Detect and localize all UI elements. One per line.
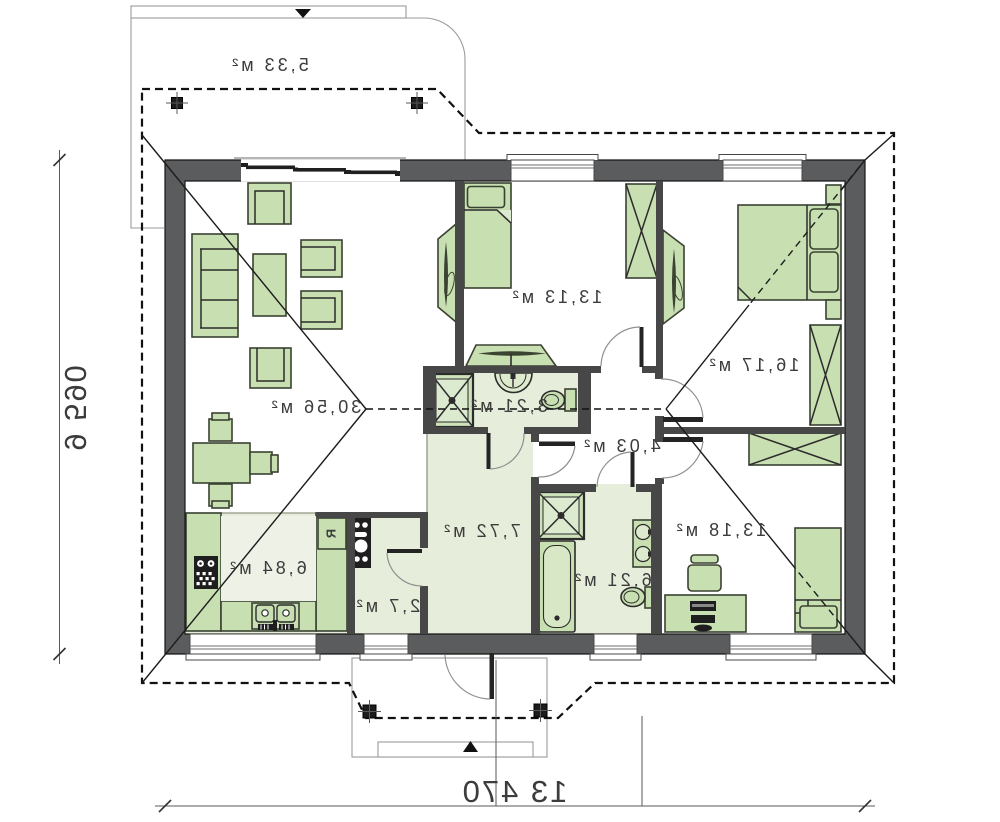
svg-text:13,18 м²: 13,18 м² [674, 520, 766, 540]
svg-text:9 590: 9 590 [58, 363, 93, 451]
svg-text:5,33 м²: 5,33 м² [229, 55, 308, 75]
svg-text:13 470: 13 470 [461, 774, 568, 809]
svg-text:4,03 м²: 4,03 м² [581, 436, 660, 456]
svg-text:6,84 м²: 6,84 м² [227, 558, 306, 578]
svg-text:7,72 м²: 7,72 м² [441, 521, 520, 541]
svg-text:16,17 м²: 16,17 м² [707, 355, 799, 375]
svg-text:30,56 м²: 30,56 м² [269, 397, 361, 417]
svg-text:3,21 м²: 3,21 м² [468, 396, 547, 416]
svg-text:R: R [324, 529, 339, 539]
svg-text:6,21 м²: 6,21 м² [572, 570, 651, 590]
svg-text:13,13 м²: 13,13 м² [510, 287, 602, 307]
svg-text:2,7 м²: 2,7 м² [354, 596, 420, 616]
